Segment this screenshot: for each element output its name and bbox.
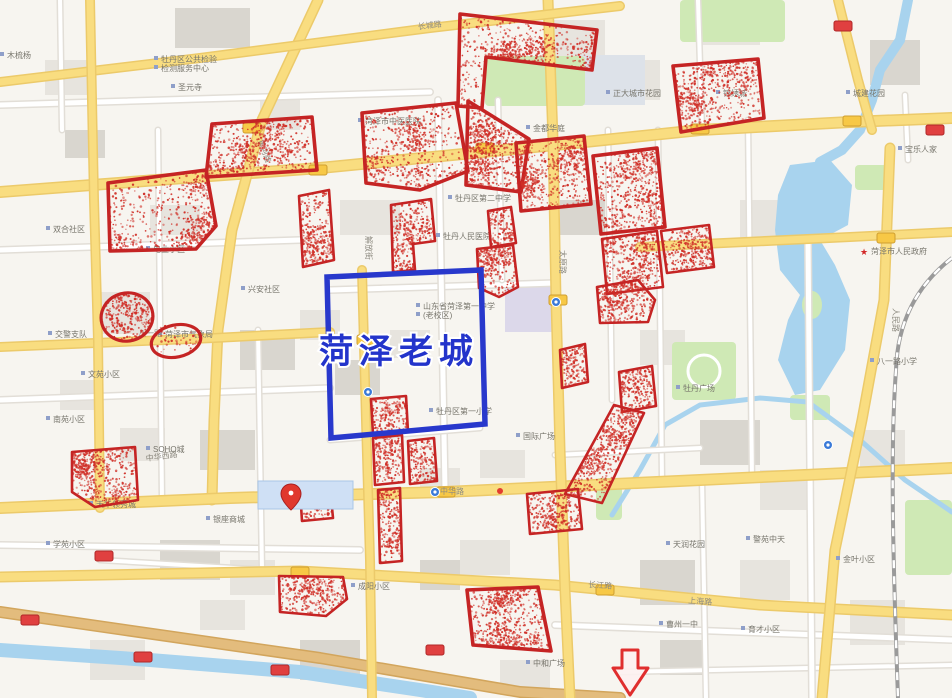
building-block [480, 450, 525, 478]
poi-icon [836, 556, 840, 560]
poi-label: 学苑小区 [53, 539, 85, 549]
poi-icon [46, 541, 50, 545]
poi-icon [436, 233, 440, 237]
poi-icon [898, 146, 902, 150]
poi-label: 正大城市花园 [613, 88, 661, 98]
building-block [175, 8, 250, 48]
poi-label: 成阳小区 [358, 581, 390, 591]
minor-road [60, 0, 62, 130]
poi-label: 曹州一中 [666, 619, 698, 629]
poi-label: 宝乐人家 [905, 144, 937, 154]
building-block [740, 560, 790, 600]
building-block [65, 130, 105, 158]
poi-icon [171, 84, 175, 88]
poi-label: 圣元寺 [178, 83, 202, 92]
poi-icon [676, 385, 680, 389]
poi-icon [526, 125, 530, 129]
poi-label: 菏泽市气象局 [165, 329, 213, 339]
building-block [860, 430, 905, 470]
poi-icon [741, 626, 745, 630]
poi-icon [46, 416, 50, 420]
poi-label: 金叶小区 [843, 554, 875, 564]
government-star-icon: ★ [860, 247, 868, 257]
road-name-label: 解放街 [364, 236, 374, 260]
poi-icon [846, 90, 850, 94]
poi-label: 牡丹区第二中学 [455, 193, 511, 203]
poi-icon [48, 331, 52, 335]
poi-icon [666, 541, 670, 545]
poi-label: 南苑小区 [53, 414, 85, 424]
road-badge [877, 233, 895, 243]
poi-label: 牡丹区公共检验 [161, 54, 217, 64]
poi-label: 交警支队 [55, 329, 87, 339]
road-name-label: 上海路 [688, 595, 713, 607]
poi-icon [416, 303, 420, 307]
national-road-badge [271, 665, 289, 675]
poi-label: 文苑小区 [88, 369, 120, 379]
poi-icon [154, 65, 158, 69]
poi-label: 城建花园 [853, 88, 885, 98]
traffic-dot [497, 488, 503, 494]
poi-icon [606, 90, 610, 94]
poi-icon [746, 536, 750, 540]
poi-label: 国际广场 [523, 431, 555, 441]
poi-label: 金都华庭 [533, 123, 565, 133]
road-name-label: 长江路 [588, 579, 613, 591]
poi-icon [659, 621, 663, 625]
transit-station-dot [554, 300, 557, 303]
poi-icon [516, 433, 520, 437]
national-road-badge [426, 645, 444, 655]
poi-label: 育才小区 [748, 624, 780, 634]
transit-station-dot [366, 390, 369, 393]
poi-label: 检测服务中心 [161, 63, 209, 73]
building-block [460, 540, 510, 575]
poi-label: 双合社区 [53, 224, 85, 234]
poi-label: 菏泽市人民政府 [871, 246, 927, 256]
park-area [905, 500, 952, 575]
poi-icon [448, 195, 452, 199]
national-road-badge [95, 551, 113, 561]
poi-label: 木梳杨 [7, 50, 31, 60]
poi-icon [241, 286, 245, 290]
poi-label: 八一路小学 [877, 356, 917, 366]
road-name-label: 人民路 [891, 308, 901, 332]
map-canvas[interactable]: 亿联时代广场牡丹人民医院山东省菏泽第一中学(老校区)牡丹区第一小学牡丹区第二中学… [0, 0, 952, 698]
transit-station-dot [826, 443, 829, 446]
building-block [200, 600, 245, 630]
national-road-badge [21, 615, 39, 625]
poi-icon [206, 516, 210, 520]
poi-label: 兴安社区 [248, 284, 280, 294]
poi-icon [526, 660, 530, 664]
old-city-title: 菏泽老城 [319, 333, 479, 371]
poi-label: 中和广场 [533, 658, 565, 668]
poi-icon [46, 226, 50, 230]
poi-label: 牡丹人民医院 [443, 231, 491, 241]
poi-icon [81, 371, 85, 375]
transit-station-dot [433, 490, 436, 493]
poi-label: 牡丹广场 [683, 383, 715, 393]
poi-label: 警苑中天 [753, 534, 785, 544]
poi-icon [154, 56, 158, 60]
road-name-label: 中华路 [440, 486, 464, 496]
poi-label: 天润花园 [673, 539, 705, 549]
poi-icon [0, 52, 4, 56]
selected-building-highlight [258, 481, 353, 509]
poi-icon [416, 312, 420, 316]
national-road-badge [134, 652, 152, 662]
poi-icon [870, 358, 874, 362]
national-road-badge [926, 125, 944, 135]
poi-label: (老校区) [423, 310, 453, 320]
road-name-label: 太原路 [558, 250, 568, 274]
poi-icon [146, 446, 150, 450]
poi-label: 银座商城 [213, 514, 245, 524]
road-badge [843, 116, 861, 126]
poi-icon [351, 583, 355, 587]
poi-icon [429, 408, 433, 412]
map-pin-dot [289, 491, 294, 496]
national-road-badge [834, 21, 852, 31]
city-map[interactable]: 亿联时代广场牡丹人民医院山东省菏泽第一中学(老校区)牡丹区第一小学牡丹区第二中学… [0, 0, 952, 698]
